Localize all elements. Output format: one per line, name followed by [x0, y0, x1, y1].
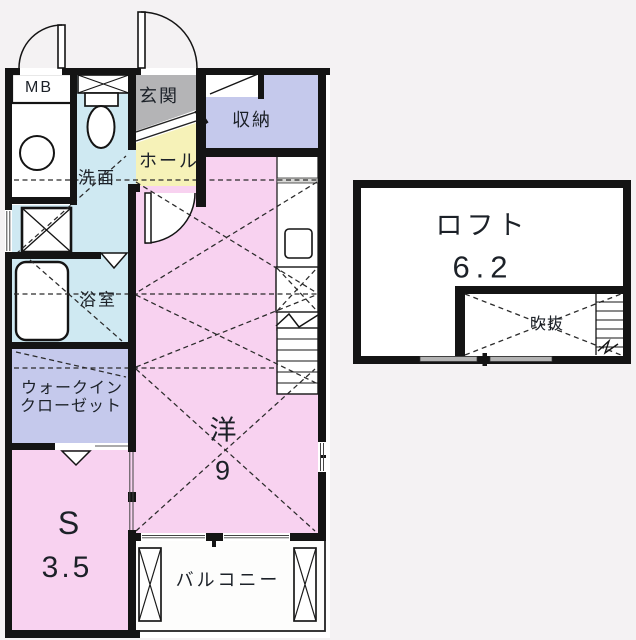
- wall-center-upper: [128, 68, 136, 150]
- label-bathroom: 浴室: [79, 292, 117, 309]
- wall-storage-bottom: [196, 148, 326, 157]
- label-storage: 収納: [232, 111, 272, 129]
- label-walkin-line2: クローゼット: [20, 399, 122, 415]
- wall-bath-bottom: [5, 342, 136, 349]
- label-western-room: 洋: [210, 418, 239, 445]
- wall-bath-top: [5, 252, 101, 259]
- toilet-bowl: [88, 106, 115, 148]
- utility-door-arc: [19, 25, 62, 68]
- wall-storage-stub: [258, 75, 264, 99]
- label-western-room-size: 9: [215, 458, 233, 485]
- window-bottom-post-tick: [212, 541, 216, 547]
- label-void: 吹抜: [530, 317, 564, 333]
- wall-hall-storage: [196, 68, 206, 207]
- water-heater-circle: [20, 136, 54, 170]
- bathtub: [16, 262, 68, 340]
- window-bottom-1: [141, 533, 206, 541]
- window-left: [5, 210, 12, 252]
- utility-door-leaf: [58, 25, 65, 68]
- door-opening-entrance: [141, 68, 196, 75]
- wall-center-mid: [128, 186, 136, 443]
- wall-bottom-left: [5, 630, 140, 638]
- void-wall-top: [455, 286, 627, 294]
- loft-window-1: [420, 357, 477, 362]
- door-opening-top-left: [20, 68, 62, 75]
- wall-utility-right: [70, 68, 77, 205]
- floorplan-canvas: MB 玄関 ホール 収納 洗面 浴室 ウォークイン クローゼット 洋 9 S 3…: [0, 0, 636, 640]
- label-service-room-size: 3.5: [42, 553, 93, 583]
- toilet-tank: [85, 93, 118, 106]
- loft-window-2: [490, 357, 552, 362]
- wall-utility-bottom: [12, 197, 77, 204]
- wall-hall-door-stub: [128, 184, 140, 192]
- label-balcony: バルコニー: [176, 571, 281, 589]
- hall-door-leaf: [145, 193, 151, 243]
- entrance-door-arc: [141, 12, 197, 68]
- wall-center-lower: [128, 530, 136, 632]
- label-meter-box: MB: [25, 80, 53, 96]
- label-hall: ホール: [139, 152, 199, 170]
- label-walkin-line1: ウォークイン: [21, 381, 123, 397]
- room-storage-fill-upper: [264, 75, 321, 99]
- label-entrance: 玄関: [139, 87, 179, 105]
- window-bottom-2: [223, 533, 290, 541]
- label-service-room: S: [58, 507, 82, 539]
- wall-center-nub: [128, 492, 136, 502]
- kitchen-sink: [285, 229, 312, 258]
- wall-left: [5, 68, 12, 638]
- label-loft-size: 6.2: [452, 252, 513, 283]
- loft-window-tick: [483, 353, 488, 366]
- label-washroom: 洗面: [78, 170, 116, 187]
- entrance-door-leaf: [138, 12, 145, 68]
- label-loft: ロフト: [436, 213, 529, 240]
- void-wall-left: [455, 286, 465, 359]
